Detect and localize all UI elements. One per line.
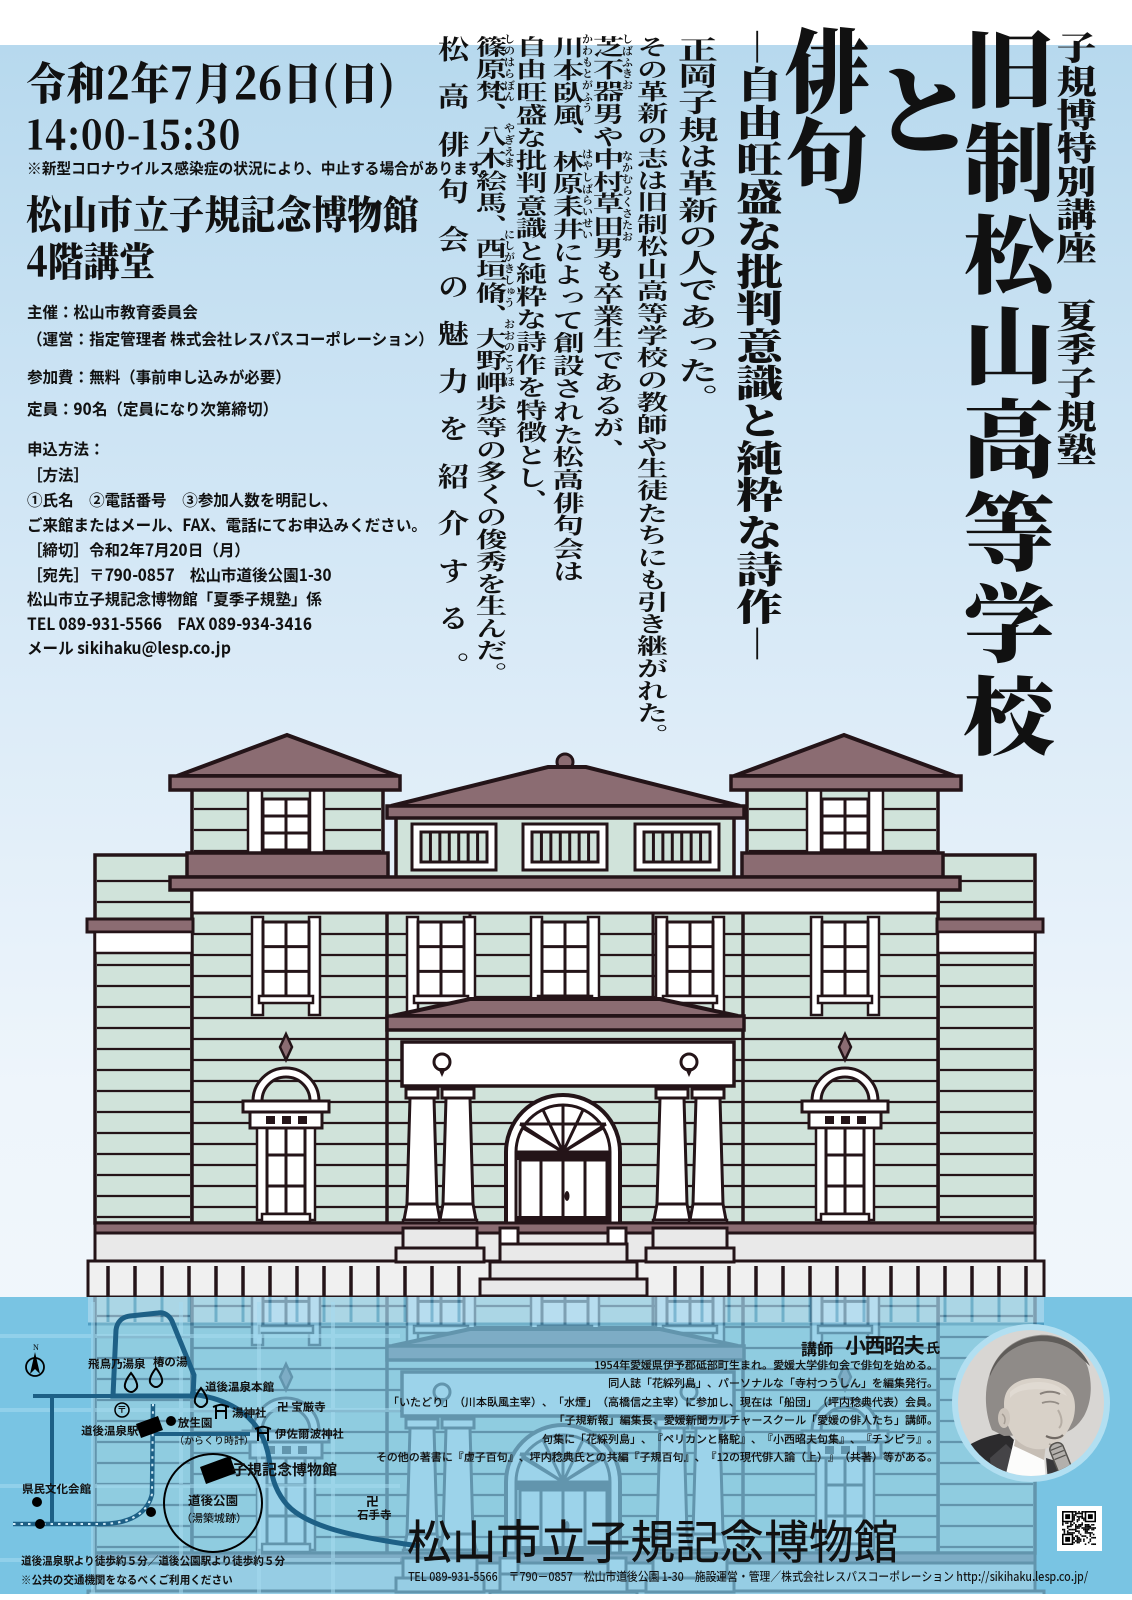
svg-text:N: N	[33, 1342, 39, 1353]
